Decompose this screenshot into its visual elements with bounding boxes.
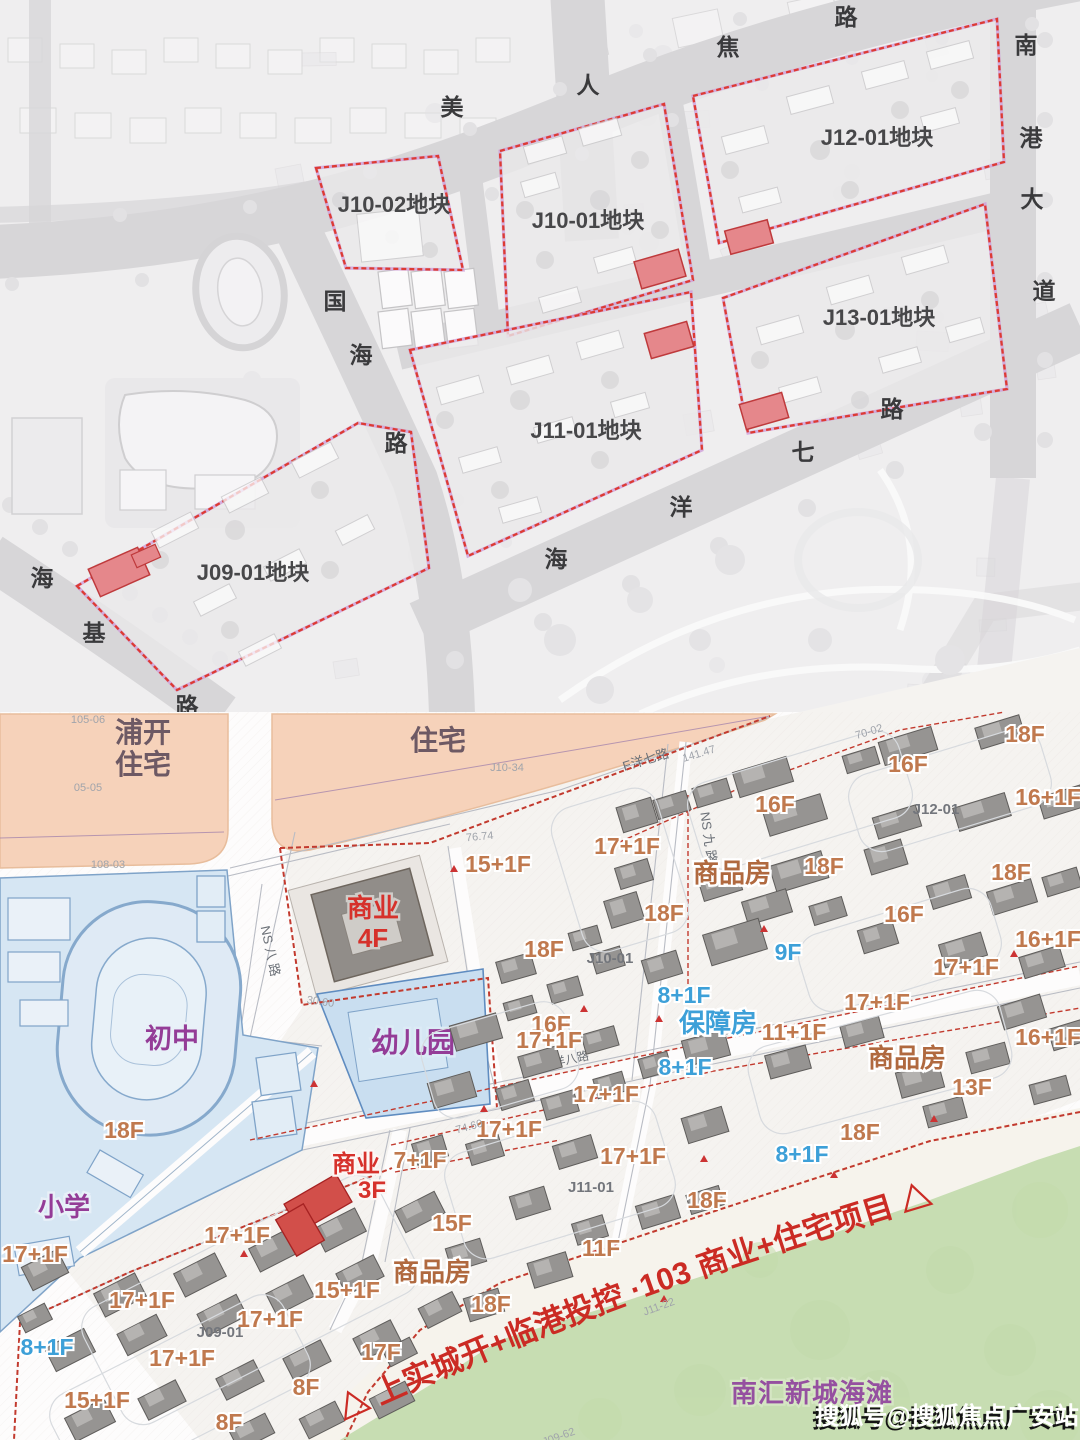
svg-text:保障房: 保障房 [678, 1008, 757, 1038]
svg-text:海: 海 [31, 565, 54, 591]
svg-text:17+1F: 17+1F [109, 1287, 175, 1313]
svg-text:15+1F: 15+1F [465, 851, 531, 877]
svg-text:J10-02地块: J10-02地块 [338, 192, 452, 217]
svg-text:住宅: 住宅 [115, 748, 171, 780]
svg-text:住宅: 住宅 [410, 724, 466, 756]
svg-text:南: 南 [1015, 32, 1038, 58]
svg-text:16F: 16F [888, 751, 928, 777]
svg-text:18F: 18F [644, 900, 684, 926]
svg-text:港: 港 [1020, 125, 1044, 151]
svg-text:8+1F: 8+1F [775, 1141, 828, 1167]
svg-text:15F: 15F [432, 1210, 472, 1236]
svg-text:海: 海 [350, 342, 373, 368]
svg-text:16F: 16F [884, 901, 924, 927]
svg-text:17+1F: 17+1F [476, 1116, 542, 1142]
svg-text:17+1F: 17+1F [516, 1027, 582, 1053]
svg-text:搜狐号@搜狐焦点广安站: 搜狐号@搜狐焦点广安站 [815, 1402, 1078, 1430]
svg-text:16+1F: 16+1F [1015, 1024, 1080, 1050]
svg-text:J09-01地块: J09-01地块 [197, 560, 311, 585]
svg-text:18F: 18F [687, 1187, 727, 1213]
svg-text:8F: 8F [293, 1374, 320, 1400]
svg-text:J11-01地块: J11-01地块 [530, 418, 642, 443]
svg-text:11F: 11F [582, 1235, 620, 1261]
svg-text:J10-01地块: J10-01地块 [532, 208, 646, 233]
svg-text:105-06: 105-06 [71, 714, 105, 726]
svg-text:J12-01地块: J12-01地块 [821, 125, 935, 150]
svg-text:18F: 18F [104, 1117, 144, 1143]
svg-text:七: 七 [792, 439, 815, 465]
svg-text:道: 道 [1033, 278, 1056, 304]
svg-text:18F: 18F [991, 859, 1031, 885]
svg-text:05-05: 05-05 [74, 782, 102, 794]
svg-text:商品房: 商品房 [393, 1257, 471, 1287]
svg-text:人: 人 [577, 72, 601, 98]
svg-text:18F: 18F [840, 1119, 880, 1145]
svg-text:J12-01: J12-01 [913, 801, 960, 818]
svg-text:17+1F: 17+1F [573, 1081, 639, 1107]
svg-text:17+1F: 17+1F [844, 989, 910, 1015]
svg-text:17+1F: 17+1F [237, 1306, 303, 1332]
svg-text:洋: 洋 [670, 494, 693, 520]
svg-text:17F: 17F [361, 1339, 401, 1365]
svg-text:17+1F: 17+1F [149, 1345, 215, 1371]
svg-text:17+1F: 17+1F [600, 1143, 666, 1169]
svg-text:8+1F: 8+1F [657, 982, 710, 1008]
svg-text:17+1F: 17+1F [2, 1241, 68, 1267]
svg-text:J10-34: J10-34 [490, 762, 524, 774]
svg-text:7+1F: 7+1F [393, 1147, 446, 1173]
svg-text:商品房: 商品房 [868, 1043, 946, 1073]
svg-text:8F: 8F [216, 1409, 243, 1435]
svg-text:J13-01地块: J13-01地块 [823, 305, 937, 330]
svg-text:13F: 13F [952, 1074, 992, 1100]
svg-text:16F: 16F [755, 791, 795, 817]
svg-text:17+1F: 17+1F [594, 833, 660, 859]
svg-text:108-03: 108-03 [91, 859, 125, 871]
svg-text:3F: 3F [358, 1177, 386, 1204]
svg-text:4F: 4F [358, 923, 388, 953]
svg-text:18F: 18F [1005, 721, 1045, 747]
svg-text:18F: 18F [471, 1291, 511, 1317]
svg-text:路: 路 [385, 430, 409, 456]
svg-text:国: 国 [324, 288, 347, 314]
svg-text:J09-01: J09-01 [197, 1324, 244, 1341]
svg-text:路: 路 [881, 396, 905, 422]
svg-text:基: 基 [83, 620, 107, 646]
svg-text:18F: 18F [804, 853, 844, 879]
svg-text:15+1F: 15+1F [64, 1387, 130, 1413]
svg-text:美: 美 [441, 94, 464, 120]
svg-text:8+1F: 8+1F [658, 1054, 711, 1080]
svg-text:商业: 商业 [347, 893, 399, 923]
svg-text:11+1F: 11+1F [762, 1019, 827, 1045]
svg-text:浦开: 浦开 [115, 717, 171, 748]
svg-text:76.74: 76.74 [466, 830, 494, 844]
svg-text:小学: 小学 [38, 1192, 90, 1222]
svg-text:海: 海 [545, 546, 568, 572]
svg-text:J11-01: J11-01 [568, 1179, 614, 1196]
svg-text:16+1F: 16+1F [1015, 784, 1080, 810]
svg-text:17+1F: 17+1F [204, 1222, 270, 1248]
svg-text:J10-01: J10-01 [587, 950, 634, 967]
svg-text:焦: 焦 [717, 34, 740, 60]
svg-text:路: 路 [835, 4, 859, 30]
svg-text:17+1F: 17+1F [933, 954, 999, 980]
svg-text:大: 大 [1021, 186, 1044, 212]
svg-text:初中: 初中 [145, 1024, 199, 1054]
svg-text:商品房: 商品房 [693, 858, 771, 888]
svg-text:9F: 9F [775, 939, 802, 965]
svg-text:幼儿园: 幼儿园 [371, 1027, 455, 1058]
svg-text:15+1F: 15+1F [314, 1277, 380, 1303]
svg-text:16+1F: 16+1F [1015, 926, 1080, 952]
svg-text:8+1F: 8+1F [20, 1334, 73, 1360]
svg-text:18F: 18F [524, 936, 564, 962]
svg-text:商业: 商业 [332, 1150, 380, 1178]
